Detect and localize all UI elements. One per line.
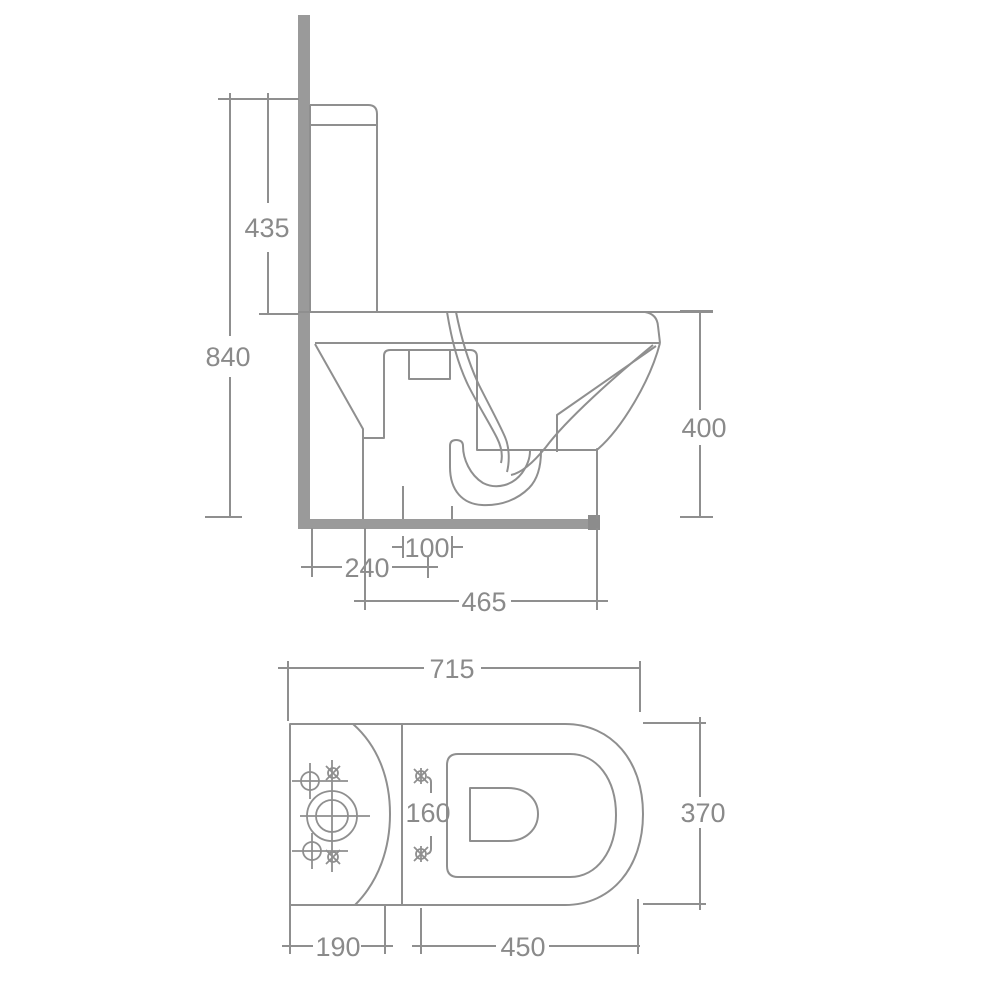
dim-400: 400: [680, 311, 727, 517]
dim-465-label: 465: [461, 587, 506, 617]
technical-drawing-page: 840 435 400 100 240 465: [0, 0, 1000, 1000]
dim-160-label: 160: [405, 798, 450, 828]
toilet-dimension-drawing: 840 435 400 100 240 465: [0, 0, 1000, 1000]
trap-sump-outer: [450, 450, 541, 505]
floor-section-bar: [300, 519, 600, 529]
dim-435: 435: [244, 93, 299, 315]
bowl-inner-diagonal: [557, 346, 656, 452]
rim-line: [315, 312, 660, 343]
dim-715-label: 715: [429, 654, 474, 684]
dim-370-label: 370: [680, 798, 725, 828]
flush-valve-seat: [409, 350, 450, 379]
dim-160: 160: [405, 777, 450, 854]
dim-465: 465: [354, 528, 608, 617]
bowl-inner-back-curve: [511, 345, 653, 475]
marker-cistern-bottom: [326, 850, 340, 864]
plan-seat-ring: [447, 754, 616, 877]
side-view: 840 435 400 100 240 465: [205, 15, 727, 617]
bowl-right-profile: [597, 343, 660, 519]
dim-840: 840: [205, 93, 299, 518]
dim-240-label: 240: [344, 553, 389, 583]
dim-715: 715: [278, 654, 640, 721]
plan-cistern-face-arc: [353, 724, 390, 905]
wall-section-bar: [298, 15, 310, 529]
dim-190-label: 190: [315, 932, 360, 962]
dim-190: 190: [282, 905, 393, 962]
dim-370: 370: [643, 717, 726, 910]
marker-cistern-top: [326, 766, 340, 780]
trap-weir-inner: [450, 440, 530, 486]
outlet-pipe-lines: [403, 486, 452, 519]
dim-400-label: 400: [681, 413, 726, 443]
pedestal-left-profile: [315, 344, 363, 519]
dim-840-label: 840: [205, 342, 250, 372]
plan-bowl-opening: [470, 788, 538, 841]
plan-view: 715 370 160 190 450: [278, 654, 726, 962]
floor-end-cap: [588, 515, 600, 530]
dim-450: 450: [412, 899, 640, 962]
flush-housing-outline: [363, 350, 597, 450]
dim-435-label: 435: [244, 213, 289, 243]
marker-fixing-hole-bottom: [414, 846, 428, 862]
dim-450-label: 450: [500, 932, 545, 962]
cistern-outline: [310, 105, 377, 312]
marker-fixing-hole-top: [414, 768, 428, 784]
